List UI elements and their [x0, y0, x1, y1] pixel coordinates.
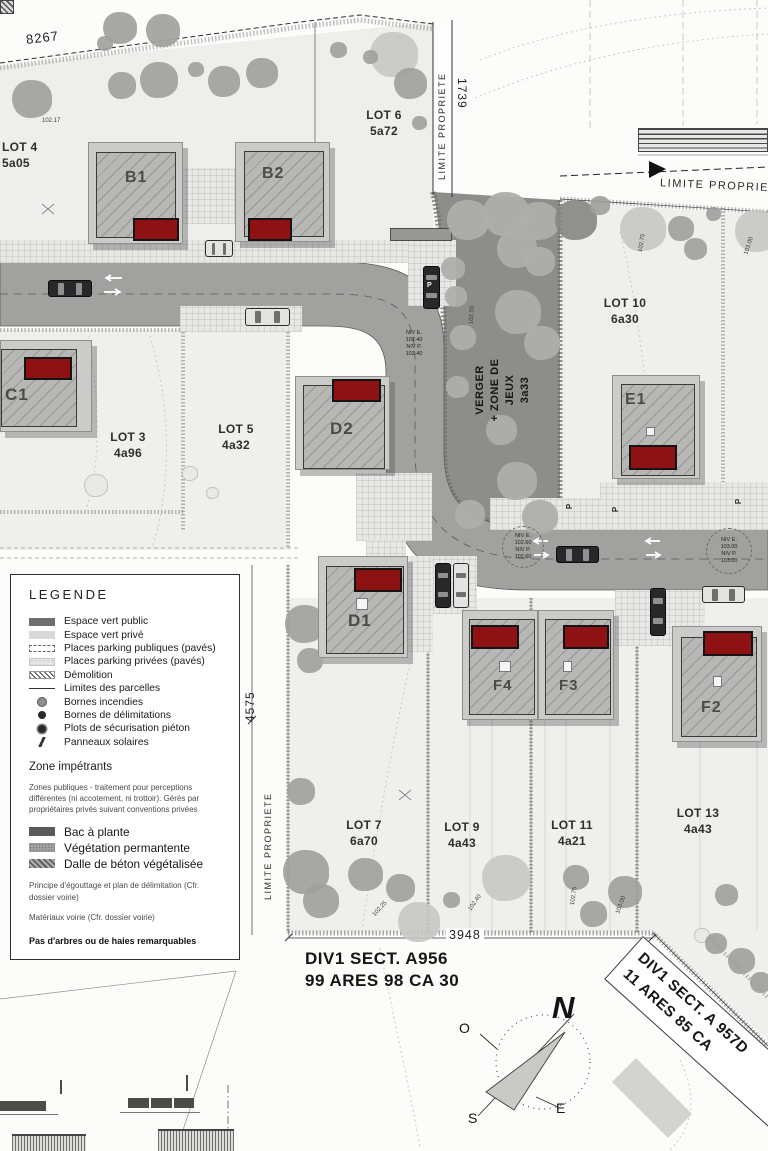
building-f3: F3 [538, 610, 614, 720]
dimension-right: 1739 [455, 78, 469, 128]
lot-label-lot10: LOT 10 6a30 [590, 296, 660, 327]
legend-zone-note: Zones publiques - traitement pour percep… [29, 782, 209, 816]
building-f2-rooflight [713, 676, 722, 687]
corner-hatch [0, 0, 14, 14]
elevation-fragment [120, 1112, 200, 1113]
lot-label-lot11: LOT 11 4a21 [540, 818, 604, 849]
legend-item-label: Démolition [64, 670, 113, 681]
limites-parcelles-swatch [29, 685, 55, 693]
terrace-d2 [356, 473, 432, 541]
tree [394, 68, 427, 99]
dimension-bottom: 3948 [446, 928, 484, 942]
lot-label-lot3: LOT 3 4a96 [96, 430, 160, 461]
legend-item: Plots de sécurisation piéton [29, 722, 239, 735]
demolition-swatch [29, 671, 55, 679]
legend-item-label: Bac à plante [64, 825, 130, 839]
building-d2-solar-panel [332, 379, 381, 402]
building-e1-solar-panel [629, 445, 677, 470]
building-b1-label: B1 [125, 169, 147, 187]
building-d2-label: D2 [330, 419, 354, 439]
compass-rose [478, 1014, 590, 1116]
tree [206, 487, 219, 499]
legend-item-label: Limites des parcelles [64, 683, 160, 694]
limite-propriete-label-bottom: LIMITE PROPRIETE [263, 788, 273, 900]
panneau-solaire-icon [29, 737, 55, 747]
level-label-road-left: NIV E. 102.60 NIV P. 102.60 [502, 526, 544, 568]
legend-panel: LEGENDE Espace vert public Espace vert p… [10, 574, 240, 960]
legend-item-label: Végétation permantente [64, 841, 190, 855]
building-d1-rooflight [356, 598, 368, 610]
elevation-fragment [174, 1098, 194, 1108]
tree [140, 62, 178, 98]
legend-title: LEGENDE [29, 587, 239, 602]
tree [580, 901, 607, 927]
elevation-fragment [0, 1114, 58, 1115]
terrace-b1-b2 [180, 168, 238, 224]
tree [590, 196, 610, 215]
legend-item: Places parking privées (pavés) [29, 655, 239, 668]
car-icon [205, 240, 233, 257]
building-d1: D1 [318, 556, 408, 658]
tree [182, 466, 198, 481]
lot-label-lot5: LOT 5 4a32 [204, 422, 268, 453]
car-icon [702, 586, 745, 603]
building-c1: C1 [0, 340, 92, 432]
building-b2-solar-panel [248, 218, 292, 241]
borne-incendie-icon [37, 697, 47, 707]
compass-south-label: S [468, 1110, 477, 1126]
elevation-fragment [186, 1075, 188, 1091]
survey-lines [590, 0, 757, 128]
lot-name: LOT 7 [332, 818, 396, 834]
elevation-fragment [0, 1101, 46, 1111]
section-div1: DIV1 SECT. A956 99 ARES 98 CA 30 [305, 948, 459, 992]
level-label-curve: NIV E. 102.40 NIV P. 102.40 [392, 328, 436, 360]
bac-a-plante-swatch [29, 827, 55, 836]
legend-note-trees: Pas d'arbres ou de haies remarquables [29, 935, 209, 948]
building-f3-solar-panel [563, 625, 609, 649]
tree [97, 36, 113, 51]
compass-east-label: E [556, 1100, 565, 1116]
lot-name: LOT 11 [540, 818, 604, 834]
building-e1-rooflight [646, 427, 655, 436]
elevation-fragment [158, 1129, 234, 1151]
tree [330, 42, 347, 58]
legend-item-label: Espace vert privé [64, 630, 144, 641]
legend-item: Bornes de délimitations [29, 709, 239, 722]
tree [715, 884, 738, 906]
lot-name: LOT 3 [96, 430, 160, 446]
lot-name: LOT 5 [204, 422, 268, 438]
building-f4-label: F4 [493, 677, 513, 694]
tree [705, 933, 727, 954]
legend-item: Démolition [29, 669, 239, 682]
elevation-fragment [151, 1098, 172, 1108]
legend-item: Espace vert privé [29, 628, 239, 641]
tree [497, 462, 537, 500]
borne-delimitation-icon [38, 711, 46, 719]
bus-platform [390, 228, 452, 241]
tree [84, 474, 108, 497]
car-icon [435, 563, 451, 608]
compass-north-label: N [552, 990, 574, 1026]
building-f4-rooflight [499, 661, 511, 672]
tree [441, 257, 465, 280]
tree [146, 14, 180, 47]
lot-label-lot7: LOT 7 6a70 [332, 818, 396, 849]
lot-label-lot6: LOT 6 5a72 [352, 108, 416, 139]
lot-area: 4a32 [204, 438, 268, 454]
espace-vert-prive-swatch [29, 631, 55, 639]
car-icon [650, 588, 666, 636]
tree [12, 80, 52, 118]
terrace-d1-side [405, 556, 433, 652]
legend-item-label: Dalle de béton végétalisée [64, 857, 203, 871]
tree [482, 855, 530, 901]
legend-item-label: Bornes de délimitations [64, 710, 171, 721]
parking-p-label: P [427, 282, 432, 289]
parking-p-label: P [611, 507, 620, 512]
compass-west-label: O [459, 1020, 470, 1036]
legend-item: Végétation permantente [29, 840, 239, 855]
building-d2: D2 [295, 376, 390, 470]
tree [287, 778, 315, 805]
building-f2-label: F2 [701, 699, 722, 717]
elevation-fragment [12, 1134, 86, 1151]
legend-item-label: Places parking privées (pavés) [64, 656, 205, 667]
building-e1-label: E1 [625, 391, 647, 409]
building-b1: B1 [88, 142, 183, 244]
level-label-road-right: NIV E. 103.00 NIV P. 103.00 [706, 528, 752, 574]
building-f2: F2 [672, 626, 762, 742]
legend-item: Dalle de béton végétalisée [29, 856, 239, 871]
section-div1-line1: DIV1 SECT. A956 [305, 948, 459, 970]
parking-apron-e1 [600, 482, 768, 530]
legend-note-drainage: Principe d'égouttage et plan de délimita… [29, 880, 209, 902]
section-div1-line2: 99 ARES 98 CA 30 [305, 970, 459, 992]
dimension-left: 4575 [243, 682, 257, 722]
lot-area: 6a70 [332, 834, 396, 850]
lot-area: 4a43 [666, 822, 730, 838]
lot-area: 5a05 [2, 156, 66, 172]
tree [728, 948, 755, 974]
car-icon [556, 546, 599, 563]
building-f4-solar-panel [471, 625, 519, 649]
tree [668, 216, 694, 241]
plot-securisation-icon [38, 725, 46, 733]
tree [443, 892, 460, 908]
building-f3-label: F3 [559, 677, 579, 694]
legend-item: Bornes incendies [29, 695, 239, 708]
tree [525, 247, 555, 276]
lot-name: LOT 9 [430, 820, 494, 836]
lot-name: LOT 4 [2, 140, 66, 156]
tree [455, 500, 485, 529]
spot-elevation: 102.17 [42, 118, 60, 124]
building-b2-label: B2 [262, 165, 284, 183]
tree [445, 286, 467, 307]
lot-area: 6a30 [590, 312, 660, 328]
tree [684, 238, 707, 260]
tree [398, 902, 440, 942]
lot-label-lot13: LOT 13 4a43 [666, 806, 730, 837]
legend-item-label: Espace vert public [64, 616, 148, 627]
limite-propriete-label-vertical: LIMITE PROPRIETE [437, 48, 447, 180]
parking-public-swatch [29, 645, 55, 652]
building-b1-solar-panel [133, 218, 179, 241]
tree [208, 66, 240, 97]
tree [348, 858, 383, 891]
car-icon [453, 563, 469, 608]
building-b2: B2 [235, 142, 330, 242]
tree [188, 62, 204, 77]
retaining-wall-section [638, 128, 768, 152]
lot-label-lot9: LOT 9 4a43 [430, 820, 494, 851]
tree [363, 50, 378, 64]
building-d1-label: D1 [348, 611, 372, 631]
lot-area: 5a72 [352, 124, 416, 140]
parking-p-label: P [565, 504, 574, 509]
tree [246, 58, 278, 88]
legend-item: Limites des parcelles [29, 682, 239, 695]
dalle-beton-swatch [29, 859, 55, 868]
legend-item-label: Bornes incendies [64, 697, 143, 708]
elevation-fragment [60, 1080, 62, 1094]
legend-item-label: Places parking publiques (pavés) [64, 643, 216, 654]
parking-p-label: P [734, 499, 743, 504]
building-f2-solar-panel [703, 631, 753, 656]
site-plan: B1 B2 C1 D2 D1 E1 F4 F3 F2 P P P P LOT 4… [0, 0, 768, 1151]
building-c1-label: C1 [5, 385, 29, 405]
legend-item: Panneaux solaires [29, 736, 239, 749]
legend-item: Bac à plante [29, 824, 239, 839]
tree [303, 884, 339, 918]
car-icon [245, 308, 290, 326]
tree [108, 72, 136, 99]
legend-item-label: Plots de sécurisation piéton [64, 723, 190, 734]
legend-note-materials: Matériaux voirie (Cfr. dossier voirie) [29, 912, 209, 923]
lot-label-lot4: LOT 4 5a05 [2, 140, 66, 171]
lot-name: LOT 13 [666, 806, 730, 822]
legend-item: Places parking publiques (pavés) [29, 642, 239, 655]
lot-area: 4a43 [430, 836, 494, 852]
building-d1-solar-panel [354, 568, 402, 592]
parking-prive-swatch [29, 658, 55, 666]
elevation-fragment [128, 1098, 149, 1108]
vegetation-permanente-swatch [29, 843, 55, 852]
legend-item: Espace vert public [29, 615, 239, 628]
tree [446, 376, 469, 398]
lot-name: LOT 10 [590, 296, 660, 312]
espace-vert-public-swatch [29, 618, 55, 626]
car-icon [48, 280, 92, 297]
lot-area: 4a21 [540, 834, 604, 850]
tree [706, 207, 721, 221]
lot-name: LOT 6 [352, 108, 416, 124]
tree [750, 972, 768, 993]
building-e1: E1 [612, 375, 700, 479]
tree [386, 874, 415, 902]
building-f3-rooflight [563, 661, 572, 672]
verger-zone-label: VERGER + ZONE DE JEUX 3a33 [473, 320, 537, 460]
legend-zone-title: Zone impétrants [29, 761, 239, 773]
building-f4: F4 [462, 610, 538, 720]
tree [447, 200, 489, 240]
lot-area: 4a96 [96, 446, 160, 462]
building-c1-solar-panel [24, 357, 72, 380]
legend-item-label: Panneaux solaires [64, 737, 149, 748]
